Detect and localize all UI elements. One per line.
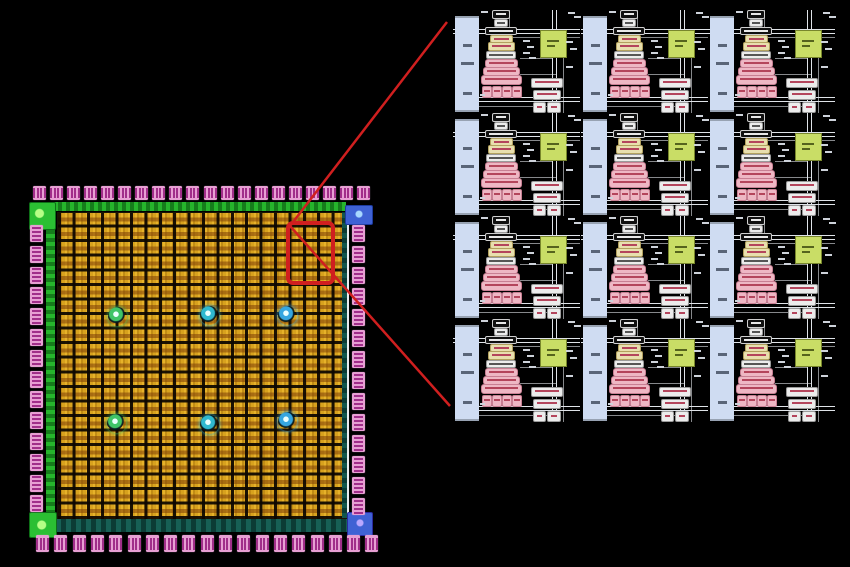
io-pad-row-top: [33, 186, 373, 200]
annotation-mark: [829, 16, 836, 18]
block-label: [535, 287, 559, 289]
annotation-mark: [655, 149, 662, 151]
annotation-mark: [821, 41, 828, 43]
annotation-mark: [480, 94, 485, 96]
ram-bar-label: [718, 92, 727, 95]
io-pad: [352, 498, 365, 515]
logic-block: [486, 257, 516, 265]
macro-cell: [581, 113, 708, 216]
annotation-mark: [694, 375, 701, 377]
zoom-panel: [453, 10, 837, 422]
annotation-mark: [823, 115, 830, 117]
annotation-mark: [694, 41, 701, 43]
datapath-block-pink: [609, 384, 650, 394]
logic-block: [494, 19, 508, 27]
block-label: [492, 45, 511, 47]
io-pad: [54, 535, 67, 552]
block-label: [537, 93, 557, 95]
annotation-mark: [527, 355, 534, 357]
result-block: [531, 284, 563, 294]
datapath-pad-pink: [512, 292, 522, 304]
config-block-label: [547, 143, 559, 145]
annotation-mark: [523, 52, 530, 54]
block-label: [679, 106, 685, 108]
io-pad: [30, 475, 43, 492]
io-pad: [30, 246, 43, 263]
result-block: [533, 193, 561, 203]
block-label: [487, 70, 516, 72]
annotation-mark: [651, 258, 658, 260]
logic-block: [622, 225, 636, 233]
logic-block-dark: [747, 113, 765, 122]
annotation-mark: [609, 320, 616, 322]
block-label: [613, 181, 646, 183]
block-label: [497, 331, 505, 333]
block-label: [752, 228, 760, 230]
block-label: [759, 399, 765, 401]
logic-block-dark: [747, 10, 765, 19]
block-label: [624, 116, 634, 118]
block-label: [744, 54, 768, 56]
power-rail-line-right: [347, 212, 349, 518]
bus-line-h: [607, 101, 708, 102]
logic-block: [622, 328, 636, 336]
annotation-mark: [481, 320, 488, 322]
block-label: [759, 193, 765, 195]
io-pad: [36, 535, 49, 552]
io-pad-column-left: [30, 225, 43, 517]
datapath-block-pink: [481, 75, 522, 85]
datapath-pad-pink: [620, 189, 630, 201]
block-label: [615, 70, 644, 72]
annotation-mark: [609, 217, 616, 219]
logic-block: [494, 328, 508, 336]
bus-line-h: [520, 177, 556, 178]
bus-line-h: [775, 161, 807, 162]
block-label: [537, 299, 557, 301]
ram-bar: [583, 222, 607, 318]
config-block-label: [675, 148, 683, 150]
block-label: [744, 165, 769, 167]
block-label: [612, 90, 618, 92]
config-block-label: [547, 349, 559, 351]
annotation-mark: [735, 403, 740, 405]
io-pad: [30, 433, 43, 450]
block-label: [537, 209, 542, 211]
datapath-block-pink: [736, 178, 777, 188]
annotation-mark: [694, 169, 701, 171]
result-block: [788, 296, 816, 306]
block-label: [790, 184, 814, 186]
config-block: [668, 339, 695, 367]
bus-line-h: [607, 410, 708, 411]
annotation-mark: [694, 247, 701, 249]
annotation-mark: [529, 366, 536, 368]
annotation-mark: [696, 218, 703, 220]
annotation-mark: [651, 155, 658, 157]
block-label: [617, 260, 641, 262]
result-block: [788, 308, 801, 319]
block-label: [792, 106, 797, 108]
result-block: [547, 411, 561, 422]
datapath-block-pink: [736, 75, 777, 85]
annotation-mark: [481, 217, 488, 219]
config-block-label: [675, 246, 687, 248]
block-label: [612, 193, 618, 195]
result-block: [533, 308, 546, 319]
annotation-mark: [651, 361, 658, 363]
block-label: [632, 399, 638, 401]
block-label: [620, 354, 639, 356]
annotation-mark: [529, 263, 536, 265]
datapath-pad-pink: [767, 189, 777, 201]
block-label: [497, 22, 505, 24]
bus-line-h: [648, 383, 684, 384]
result-block: [788, 90, 816, 100]
block-label: [494, 38, 509, 40]
macro-cell: [453, 10, 580, 113]
annotation-mark: [736, 320, 743, 322]
datapath-pad-pink: [630, 395, 640, 407]
datapath-block-pink: [609, 75, 650, 85]
result-block: [659, 181, 691, 191]
annotation-mark: [481, 11, 488, 13]
annotation-mark: [694, 272, 701, 274]
annotation-mark: [523, 246, 530, 248]
annotation-mark: [825, 357, 832, 359]
block-label: [551, 415, 557, 417]
block-label: [642, 90, 648, 92]
block-label: [642, 399, 648, 401]
annotation-mark: [736, 114, 743, 116]
block-label: [497, 125, 505, 127]
block-label: [514, 90, 520, 92]
ram-bar-label: [591, 298, 600, 301]
annotation-mark: [698, 151, 705, 153]
logic-block-dark: [740, 233, 772, 241]
block-label: [496, 322, 506, 324]
bus-line-h: [775, 74, 811, 75]
macro-cell: [708, 113, 835, 216]
annotation-mark: [566, 375, 573, 377]
block-label: [537, 415, 542, 417]
datapath-pad-pink: [482, 189, 492, 201]
ram-bar-label: [461, 165, 474, 168]
datapath-pad-pink: [767, 86, 777, 98]
result-block: [661, 205, 674, 216]
io-pad: [272, 186, 285, 200]
datapath-pad-pink: [620, 292, 630, 304]
block-label: [494, 193, 500, 195]
block-label: [739, 296, 745, 298]
block-label: [617, 157, 641, 159]
io-pad: [357, 186, 370, 200]
logic-block: [741, 360, 771, 368]
config-block-label: [802, 251, 810, 253]
bus-line-h: [479, 101, 580, 102]
io-pad: [352, 309, 365, 326]
logic-block-yellow: [488, 248, 515, 257]
block-label: [514, 399, 520, 401]
annotation-mark: [778, 143, 785, 145]
block-label: [744, 363, 768, 365]
block-label: [744, 371, 769, 373]
datapath-pad-pink: [502, 395, 512, 407]
datapath-pad-pink: [640, 395, 650, 407]
bus-line-h: [775, 177, 811, 178]
annotation-mark: [651, 349, 658, 351]
macro-cell: [453, 216, 580, 319]
io-pad: [352, 351, 365, 368]
block-label: [769, 193, 775, 195]
logic-block: [614, 257, 644, 265]
annotation-mark: [523, 155, 530, 157]
block-label: [489, 30, 513, 32]
block-label: [504, 296, 510, 298]
block-label: [617, 133, 641, 135]
bus-line-h: [607, 204, 708, 205]
ram-bar-label: [463, 195, 472, 198]
config-block-label: [675, 349, 687, 351]
io-pad: [352, 246, 365, 263]
logic-block-dark: [620, 113, 638, 122]
datapath-block-pink: [736, 384, 777, 394]
bus-line-h: [775, 280, 811, 281]
io-pad: [352, 330, 365, 347]
annotation-mark: [821, 169, 828, 171]
power-ring-left: [46, 211, 55, 518]
io-pad: [182, 535, 195, 552]
datapath-pad-pink: [640, 292, 650, 304]
annotation-mark: [523, 349, 530, 351]
block-label: [742, 173, 771, 175]
block-label: [744, 236, 768, 238]
block-label: [624, 13, 634, 15]
block-label: [489, 260, 513, 262]
datapath-pad-pink: [767, 395, 777, 407]
block-label: [537, 312, 542, 314]
annotation-mark: [829, 119, 836, 121]
annotation-mark: [480, 300, 485, 302]
bus-line-h: [775, 58, 807, 59]
result-block: [547, 308, 561, 319]
ram-bar-label: [718, 298, 727, 301]
annotation-mark: [778, 246, 785, 248]
ram-bar-label: [718, 147, 727, 150]
ram-bar: [583, 325, 607, 421]
block-label: [790, 390, 814, 392]
block-label: [751, 13, 761, 15]
result-block: [788, 411, 801, 422]
datapath-pad-pink: [512, 189, 522, 201]
result-block: [661, 308, 674, 319]
ram-bar-label: [463, 353, 472, 356]
block-label: [617, 363, 641, 365]
result-block: [788, 205, 801, 216]
io-pad: [50, 186, 63, 200]
annotation-mark: [698, 254, 705, 256]
macro-cell: [708, 216, 835, 319]
logic-block-dark: [492, 113, 510, 122]
config-block-label: [675, 45, 683, 47]
logic-block: [741, 154, 771, 162]
power-ring-top: [46, 202, 346, 211]
block-label: [749, 141, 764, 143]
annotation-mark: [657, 263, 664, 265]
annotation-mark: [694, 144, 701, 146]
ram-bar-label: [718, 401, 727, 404]
annotation-mark: [829, 222, 836, 224]
logic-block: [749, 19, 763, 27]
block-label: [551, 209, 557, 211]
logic-block-dark: [485, 27, 517, 35]
block-label: [747, 354, 766, 356]
block-label: [642, 193, 648, 195]
config-block-label: [547, 251, 555, 253]
logic-block: [614, 360, 644, 368]
config-block: [540, 339, 567, 367]
annotation-mark: [566, 41, 573, 43]
logic-block-yellow: [616, 248, 643, 257]
bus-line-h: [648, 367, 680, 368]
result-block: [531, 181, 563, 191]
bus-line-h: [648, 177, 684, 178]
annotation-mark: [821, 350, 828, 352]
config-block: [795, 30, 822, 58]
result-block: [802, 411, 816, 422]
block-label: [535, 184, 559, 186]
block-label: [620, 251, 639, 253]
config-block-label: [802, 143, 814, 145]
block-label: [622, 347, 637, 349]
annotation-mark: [698, 48, 705, 50]
annotation-mark: [566, 66, 573, 68]
logic-block-dark: [740, 130, 772, 138]
annotation-mark: [736, 217, 743, 219]
annotation-mark: [698, 357, 705, 359]
block-label: [551, 312, 557, 314]
logic-block: [749, 328, 763, 336]
annotation-mark: [570, 254, 577, 256]
block-label: [615, 379, 644, 381]
bus-line-h: [648, 264, 680, 265]
block-label: [494, 90, 500, 92]
datapath-pad-pink: [737, 292, 747, 304]
block-label: [496, 219, 506, 221]
block-label: [484, 399, 490, 401]
result-block: [533, 296, 561, 306]
power-ring-bottom: [46, 519, 349, 532]
block-label: [617, 54, 641, 56]
block-label: [740, 181, 773, 183]
logic-block-yellow: [616, 145, 643, 154]
block-label: [806, 415, 812, 417]
block-label: [615, 173, 644, 175]
io-pad: [118, 186, 131, 200]
logic-block: [749, 225, 763, 233]
block-label: [494, 244, 509, 246]
annotation-mark: [778, 40, 785, 42]
block-label: [537, 402, 557, 404]
io-pad: [352, 477, 365, 494]
annotation-mark: [694, 350, 701, 352]
block-label: [769, 90, 775, 92]
block-label: [489, 371, 514, 373]
block-label: [792, 415, 797, 417]
annotation-mark: [480, 197, 485, 199]
block-label: [679, 209, 685, 211]
annotation-mark: [823, 218, 830, 220]
block-label: [790, 287, 814, 289]
block-label: [617, 268, 642, 270]
annotation-mark: [568, 321, 575, 323]
config-block: [540, 133, 567, 161]
block-label: [742, 379, 771, 381]
block-label: [679, 312, 685, 314]
io-pad: [274, 535, 287, 552]
io-pad: [146, 535, 159, 552]
block-label: [749, 38, 764, 40]
ram-bar-label: [463, 44, 472, 47]
ram-bar-label: [463, 147, 472, 150]
io-pad: [221, 186, 234, 200]
annotation-mark: [657, 160, 664, 162]
result-block: [675, 102, 689, 113]
block-label: [751, 116, 761, 118]
config-block-label: [675, 143, 687, 145]
block-label: [665, 93, 685, 95]
ram-bar-label: [591, 92, 600, 95]
logic-block-dark: [613, 233, 645, 241]
logic-block: [614, 51, 644, 59]
result-block: [533, 411, 546, 422]
block-label: [617, 30, 641, 32]
block-label: [625, 228, 633, 230]
io-pad: [84, 186, 97, 200]
config-block-label: [802, 246, 814, 248]
annotation-mark: [655, 46, 662, 48]
block-label: [665, 415, 670, 417]
annotation-mark: [566, 272, 573, 274]
logic-block-yellow: [743, 145, 770, 154]
block-label: [742, 276, 771, 278]
block-label: [612, 399, 618, 401]
ram-bar-label: [591, 250, 600, 253]
block-label: [622, 193, 628, 195]
block-label: [622, 296, 628, 298]
config-block: [540, 236, 567, 264]
bus-line-h: [734, 204, 835, 205]
block-label: [665, 402, 685, 404]
logic-block-dark: [613, 336, 645, 344]
result-block: [786, 387, 818, 397]
io-pad: [365, 535, 378, 552]
result-block: [675, 411, 689, 422]
annotation-mark: [527, 149, 534, 151]
io-pad: [73, 535, 86, 552]
block-label: [537, 106, 542, 108]
datapath-pad-pink: [747, 292, 757, 304]
macro-cell: [581, 216, 708, 319]
block-label: [740, 284, 773, 286]
bus-line-h: [520, 280, 556, 281]
block-label: [551, 106, 557, 108]
block-label: [484, 296, 490, 298]
ram-bar: [710, 222, 734, 318]
block-label: [496, 116, 506, 118]
result-block: [788, 102, 801, 113]
result-block: [533, 205, 546, 216]
